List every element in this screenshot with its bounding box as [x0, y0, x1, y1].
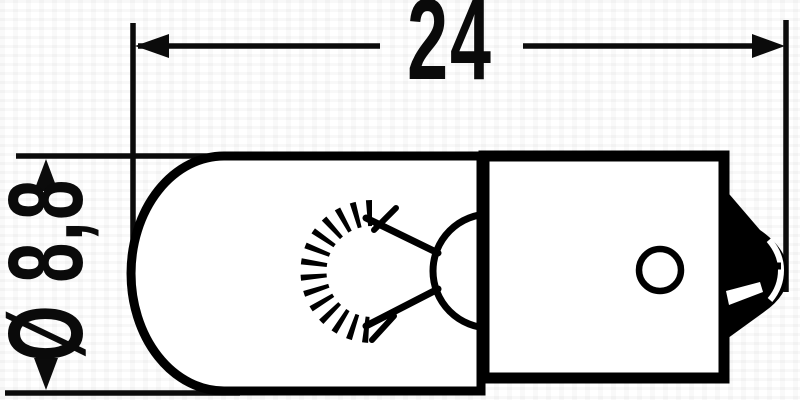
bulb-technical-drawing: 24 Ø 8,8	[0, 0, 800, 400]
arrowhead-right-icon	[752, 34, 785, 58]
diameter-dimension-label: Ø 8,8	[0, 178, 99, 361]
drawing-canvas	[0, 0, 800, 400]
bulb-base	[484, 156, 724, 378]
arrowhead-down-icon	[34, 358, 58, 390]
base-end-contact	[724, 188, 788, 341]
base-shell	[484, 156, 724, 378]
length-dimension-label: 24	[407, 0, 493, 98]
bayonet-pin	[639, 249, 681, 291]
glass-envelope-outline	[131, 156, 481, 391]
arrowhead-left-icon	[135, 34, 169, 58]
